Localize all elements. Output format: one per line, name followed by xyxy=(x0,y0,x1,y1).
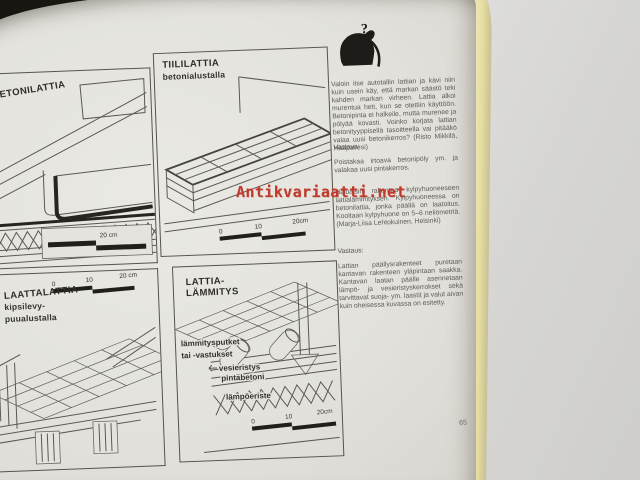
scale-10: 10 xyxy=(285,413,293,421)
scale-0: 0 xyxy=(219,228,224,235)
wood-post xyxy=(35,431,60,464)
panel-title2-lattialammitys: LÄMMITYS xyxy=(186,286,239,299)
scale-20cm: 20cm xyxy=(292,217,309,226)
label-surface-concrete: pintabetoni xyxy=(221,372,264,383)
scale-bar-betonilattia: 20 cm xyxy=(41,224,152,258)
scale-10: 10 xyxy=(85,276,93,284)
diagram-panel-betonilattia: BETONILATTIA 20 xyxy=(0,67,158,269)
panel-subtitle2-laattalattia: puualustalla xyxy=(5,312,57,324)
scale-20cm-label: 20 cm xyxy=(100,232,118,240)
question-mark-figure-icon: ? xyxy=(337,20,383,70)
question-1: Valoin itse autotallin lattian ja kävi n… xyxy=(331,76,458,153)
scale-bar-lattialammitys: 0 10 20cm xyxy=(251,408,336,435)
scale-20cm: 20 cm xyxy=(119,272,137,281)
book-photo: BETONILATTIA 20 xyxy=(0,0,640,480)
scale-0: 0 xyxy=(251,418,256,425)
answer-2-heading: Vastaus: xyxy=(337,247,363,255)
diagram-panel-laattalattia: LAATTALATTIA kipsilevy- puualustalla 0 1… xyxy=(0,268,166,472)
panel-subtitle1-laattalattia: kipsilevy- xyxy=(4,301,45,313)
page-number: 65 xyxy=(459,419,467,426)
scale-20cm: 20cm xyxy=(316,408,333,417)
wood-post xyxy=(93,421,118,454)
label-thermal-insulation: lämpöeriste xyxy=(226,391,272,402)
question-mark: ? xyxy=(361,22,369,37)
answer-1-heading: Vastaus: xyxy=(333,143,359,151)
panel-title-tiililattia: TIILILATTIA xyxy=(162,58,219,71)
scale-bar-tiililattia: 0 10 20cm xyxy=(218,217,309,245)
answer-2: Lattian päällysrakenteet puretaan kantav… xyxy=(338,258,464,311)
answer-1: Poistakaa irtoava betonipöly ym. ja vala… xyxy=(334,154,459,175)
betonilattia-diagram: 20 cm xyxy=(0,68,157,268)
label-waterproofing: vesieristys xyxy=(219,362,261,373)
tile-grid xyxy=(0,339,165,419)
qa-column: ? Valoin itse autotallin lattian ja kävi… xyxy=(329,16,453,21)
scale-10: 10 xyxy=(254,223,262,231)
diagram-panel-tiililattia: TIILILATTIA betonialustalla xyxy=(153,46,336,257)
facing-page-surface xyxy=(472,0,640,480)
page-content: BETONILATTIA 20 xyxy=(0,0,489,480)
watermark: Antikvariaatti.net xyxy=(236,183,406,201)
diagram-panel-lattialammitys: LATTIA- LÄMMITYS xyxy=(172,260,344,462)
